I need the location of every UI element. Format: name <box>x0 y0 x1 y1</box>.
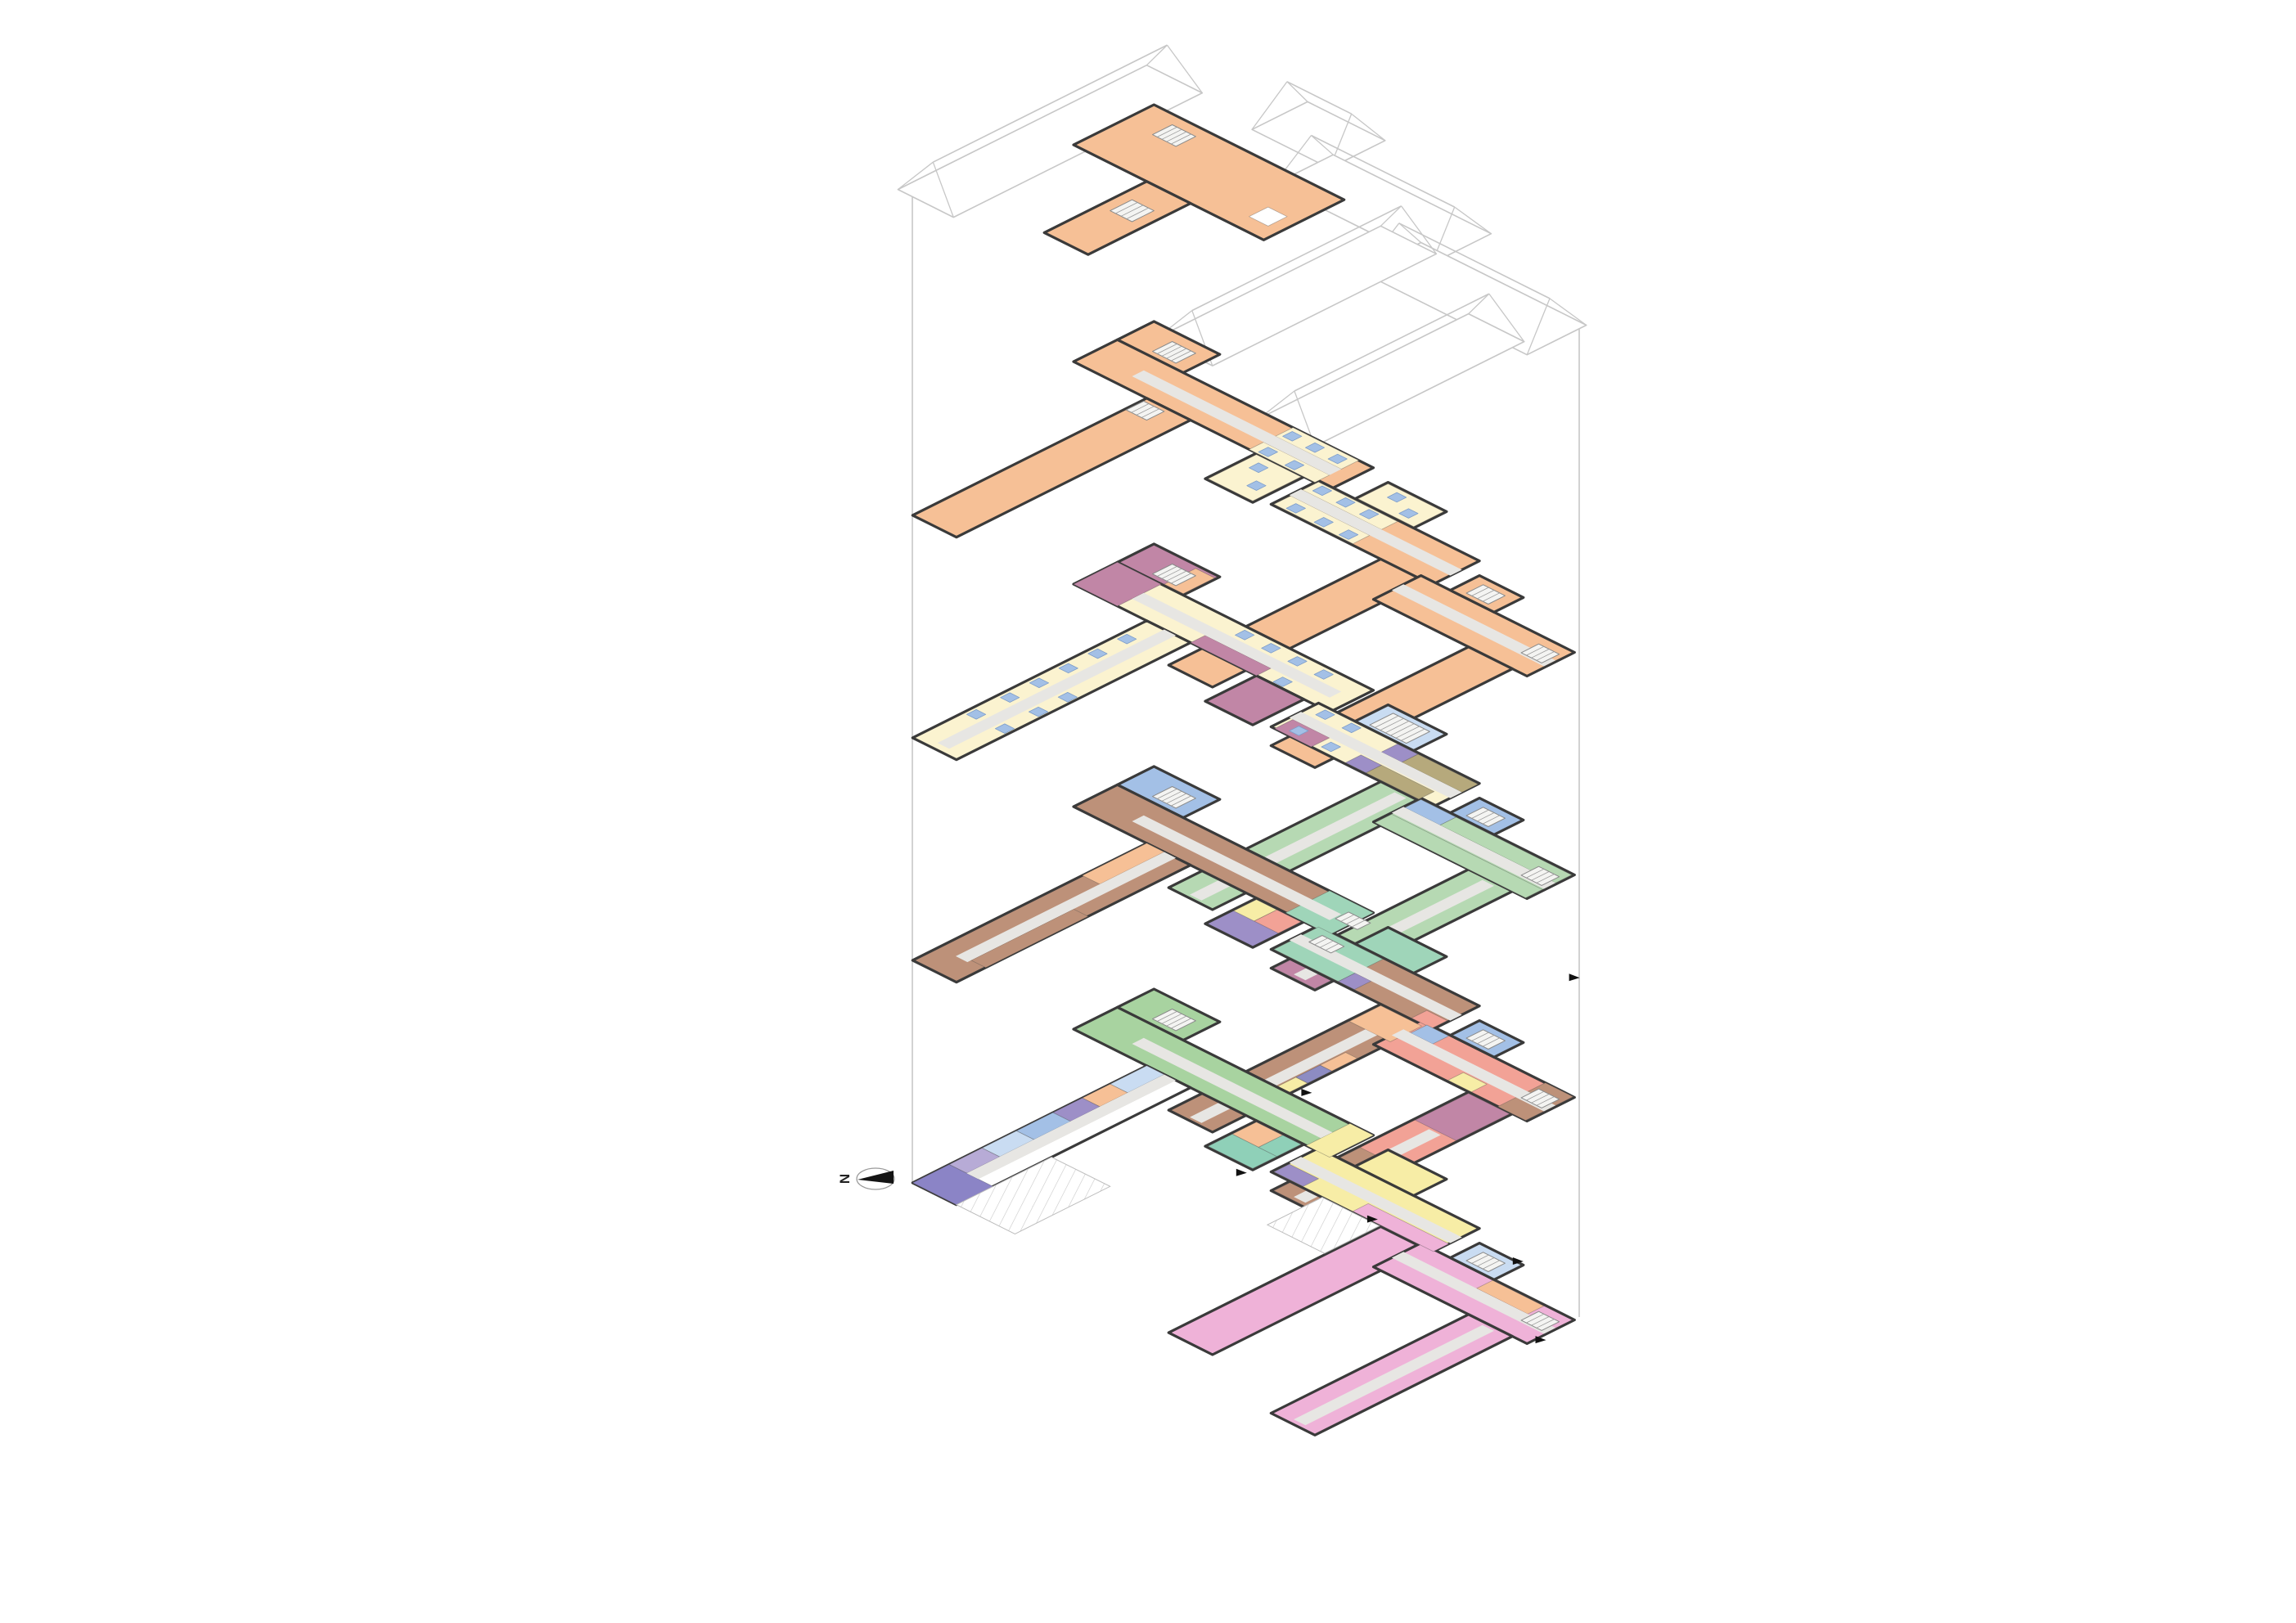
corridor <box>966 1075 1176 1180</box>
north-label: N <box>837 1174 853 1184</box>
level-1-tooth-2 <box>1168 1227 1425 1355</box>
roof-wireframe <box>898 45 1586 446</box>
attic-attic-tab <box>1044 182 1191 254</box>
roof-tooth-3 <box>1259 314 1524 447</box>
exploded-axonometric-diagram: N <box>0 0 2296 1623</box>
corridor <box>938 630 1176 749</box>
corridor <box>1294 1325 1494 1426</box>
corridor <box>956 852 1176 963</box>
roof-spine-1 <box>1252 101 1385 168</box>
entrance-arrow-icon <box>1569 973 1580 981</box>
generated-floor-plans <box>898 45 1586 1435</box>
entrance-arrow-icon <box>1236 1169 1247 1176</box>
entrance-arrow-icon <box>1301 1089 1312 1096</box>
north-arrow: N <box>837 1168 894 1189</box>
floor-plan-scene: N <box>0 0 2296 1623</box>
